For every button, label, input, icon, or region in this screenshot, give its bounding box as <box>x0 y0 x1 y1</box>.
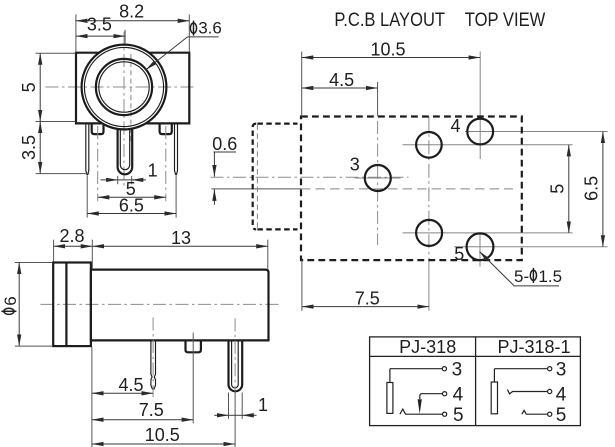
svg-text:5: 5 <box>453 405 464 426</box>
svg-text:7.5: 7.5 <box>139 400 164 420</box>
svg-text:3: 3 <box>452 360 463 381</box>
svg-text:4.5: 4.5 <box>118 375 143 395</box>
svg-text:3.5: 3.5 <box>87 15 112 35</box>
svg-text:5: 5 <box>19 82 39 92</box>
svg-text:6: 6 <box>1 296 20 305</box>
svg-text:1: 1 <box>258 395 268 415</box>
svg-text:10.5: 10.5 <box>145 425 180 445</box>
svg-text:5: 5 <box>454 244 464 264</box>
svg-text:4.5: 4.5 <box>329 70 354 90</box>
svg-text:13: 13 <box>171 228 191 248</box>
svg-text:P.C.B LAYOUT: P.C.B LAYOUT <box>334 10 445 31</box>
svg-text:6.5: 6.5 <box>119 196 144 216</box>
svg-text:PJ-318-1: PJ-318-1 <box>497 337 570 357</box>
svg-text:TOP VIEW: TOP VIEW <box>465 10 546 31</box>
svg-text:1: 1 <box>148 161 158 181</box>
svg-text:0.6: 0.6 <box>212 134 237 154</box>
svg-text:8.2: 8.2 <box>119 1 144 21</box>
svg-text:PJ-318: PJ-318 <box>399 337 456 357</box>
svg-text:3.6: 3.6 <box>198 19 222 38</box>
svg-text:6.5: 6.5 <box>582 176 602 201</box>
svg-text:5: 5 <box>548 184 568 194</box>
svg-text:5-: 5- <box>514 267 529 286</box>
svg-text:3: 3 <box>556 360 567 381</box>
svg-text:3.5: 3.5 <box>19 135 39 160</box>
svg-text:10.5: 10.5 <box>370 39 405 59</box>
svg-text:7.5: 7.5 <box>355 288 380 308</box>
svg-text:4: 4 <box>556 384 567 405</box>
svg-text:5: 5 <box>556 405 567 426</box>
svg-text:3: 3 <box>350 154 360 174</box>
svg-text:2.8: 2.8 <box>59 226 84 246</box>
svg-text:4: 4 <box>450 116 460 136</box>
svg-text:4: 4 <box>453 384 464 405</box>
svg-text:1.5: 1.5 <box>538 267 562 286</box>
